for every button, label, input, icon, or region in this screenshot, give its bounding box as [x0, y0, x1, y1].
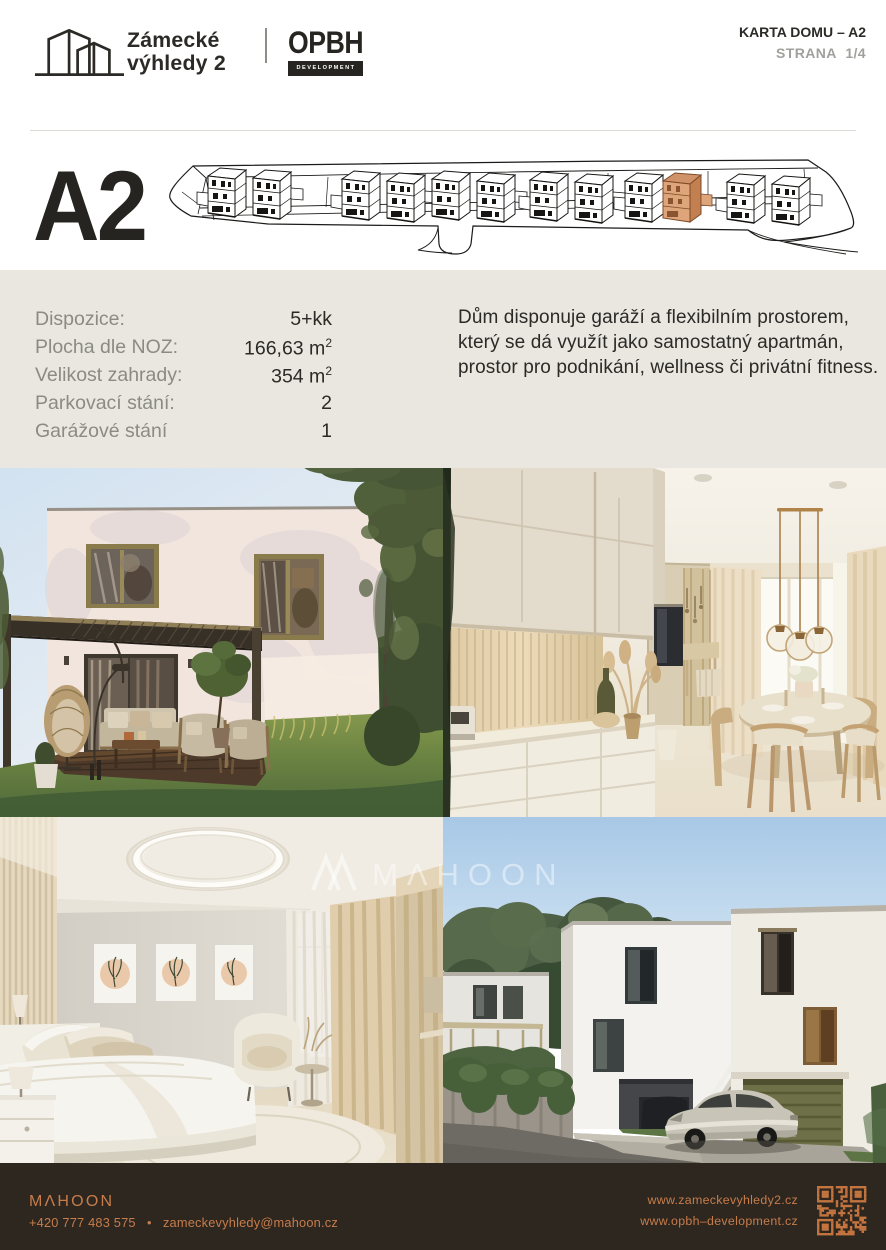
svg-text:MΛHOON: MΛHOON — [372, 857, 566, 892]
